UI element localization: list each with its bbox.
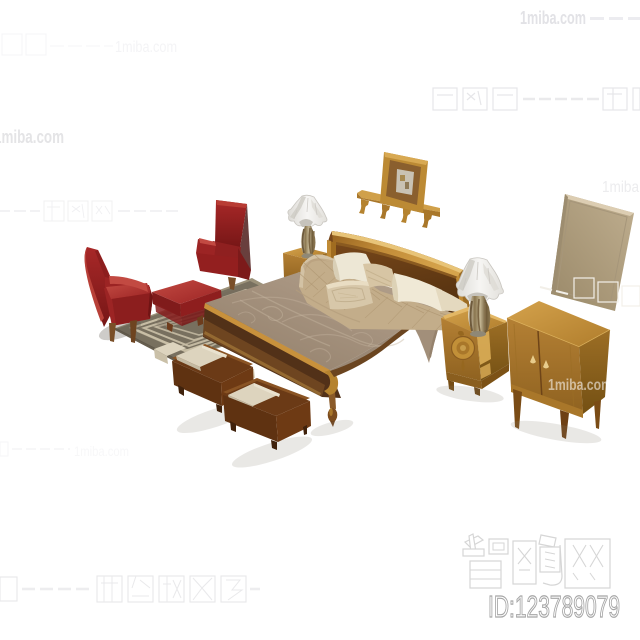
svg-text:1miba: 1miba bbox=[602, 179, 639, 196]
svg-text:1miba.com: 1miba.com bbox=[0, 127, 64, 147]
svg-text:1miba.com: 1miba.com bbox=[74, 443, 129, 459]
svg-text:1miba.com: 1miba.com bbox=[520, 8, 586, 28]
svg-text:1miba.com: 1miba.com bbox=[115, 39, 177, 56]
svg-text:ID:123789079: ID:123789079 bbox=[488, 589, 620, 624]
svg-text:1miba.com: 1miba.com bbox=[548, 377, 612, 394]
